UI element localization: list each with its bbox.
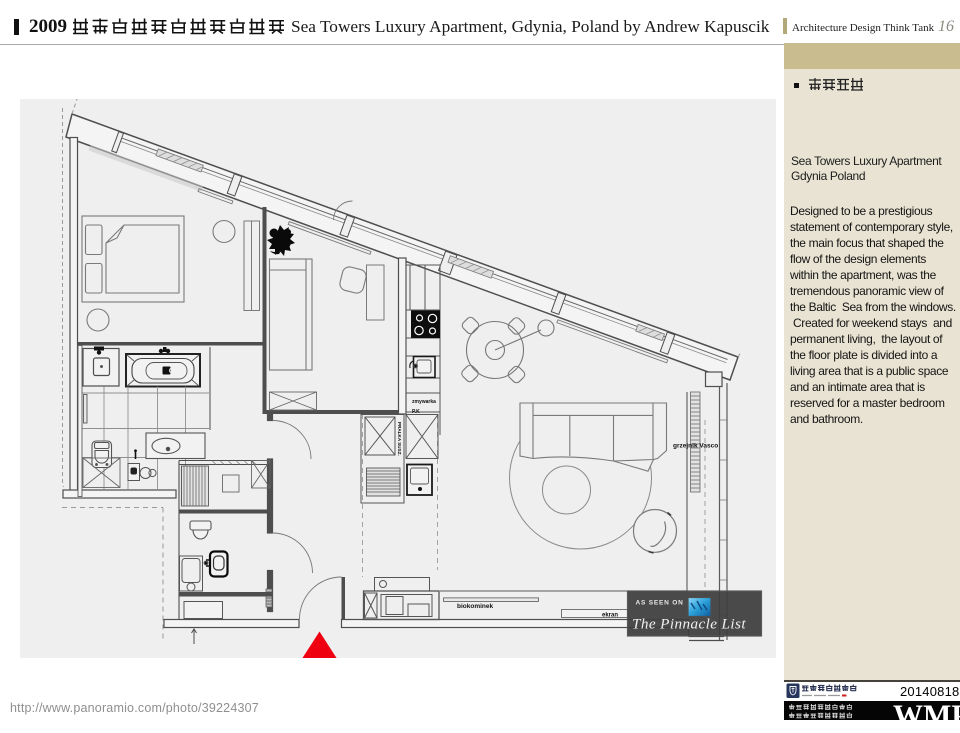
svg-text:PRALKA SUSZ.: PRALKA SUSZ. — [397, 422, 402, 456]
svg-text:The Pinnacle List: The Pinnacle List — [632, 616, 746, 633]
svg-text:ekran: ekran — [602, 613, 618, 619]
svg-text:AS SEEN ON: AS SEEN ON — [636, 600, 684, 607]
svg-text:grzejnik Vasco: grzejnik Vasco — [673, 443, 718, 450]
svg-text:zmywarka: zmywarka — [412, 399, 436, 405]
svg-text:biokominek: biokominek — [457, 603, 494, 610]
